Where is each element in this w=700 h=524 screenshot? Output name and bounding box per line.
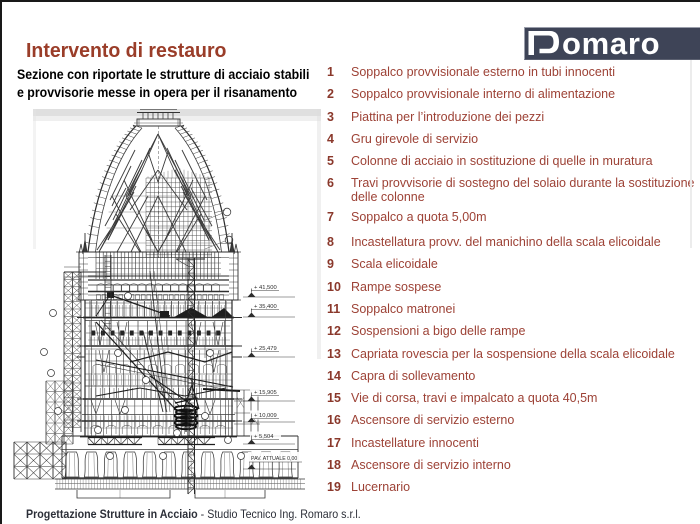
svg-text:+ 5,504: + 5,504	[254, 434, 274, 440]
svg-text:PAV. ATTUALE 0,00: PAV. ATTUALE 0,00	[251, 456, 297, 462]
svg-text:+ 41,500: + 41,500	[254, 285, 277, 291]
svg-text:+ 25,479: + 25,479	[254, 346, 277, 352]
svg-text:+ 35,400: + 35,400	[254, 304, 277, 310]
svg-text:+ 10,009: + 10,009	[254, 413, 277, 419]
svg-text:+ 15,905: + 15,905	[254, 390, 277, 396]
